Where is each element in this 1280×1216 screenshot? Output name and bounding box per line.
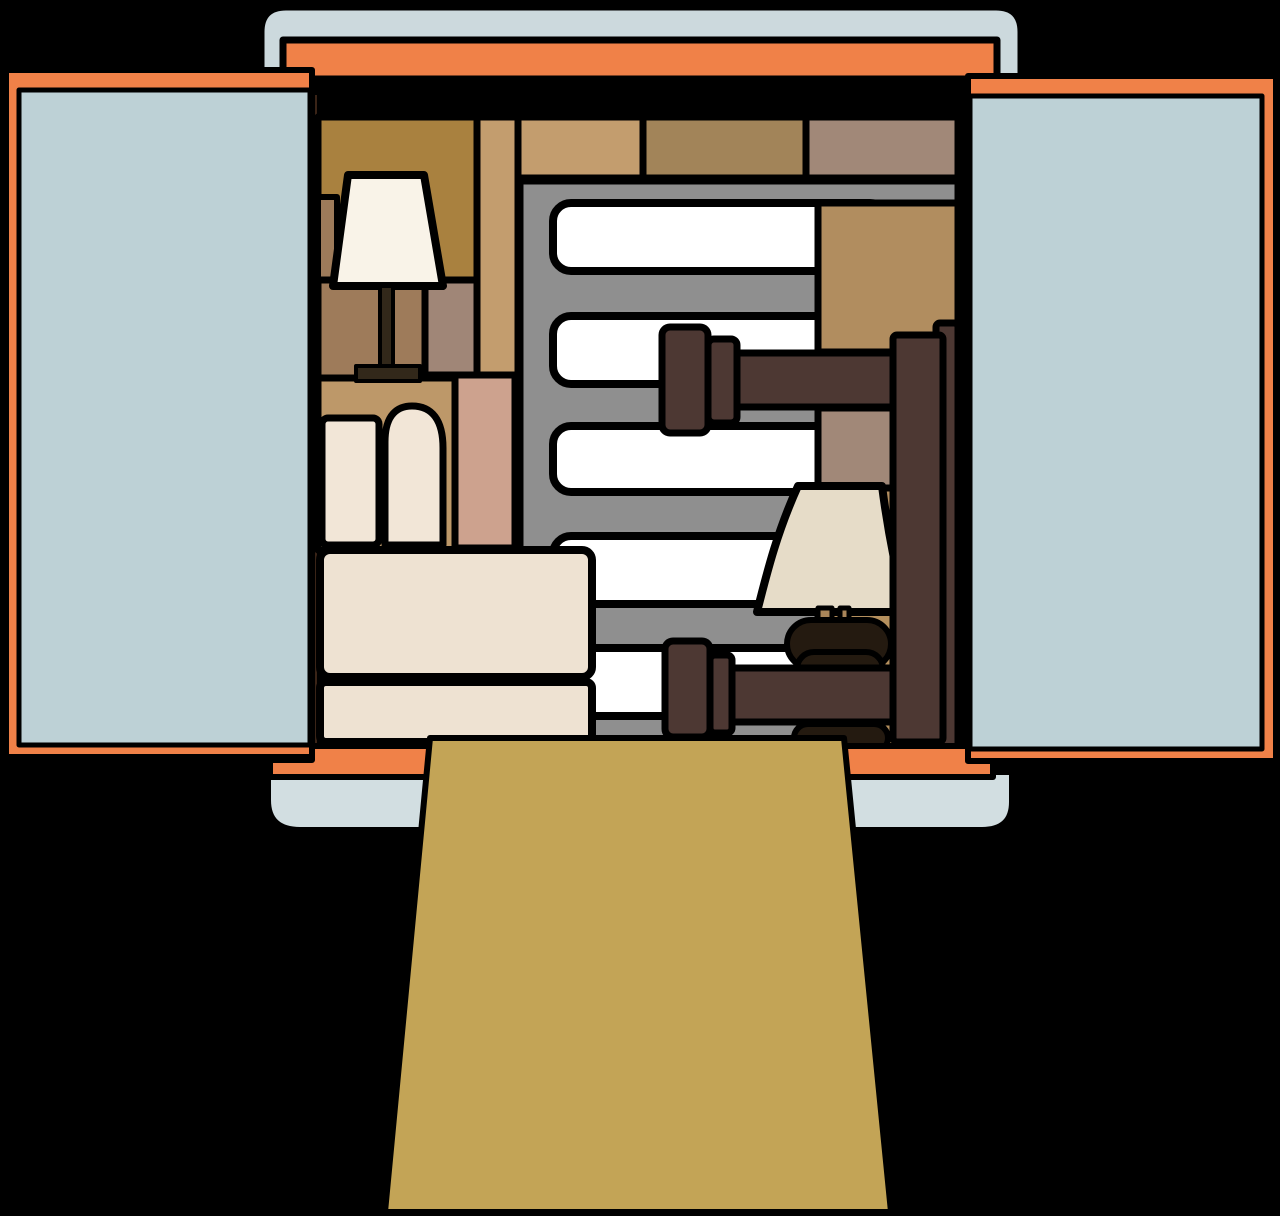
floor-lamp-base xyxy=(356,366,420,381)
box-mauve-top xyxy=(806,117,958,178)
bed-upper-bracket-a xyxy=(662,327,708,433)
loading-ramp xyxy=(385,738,891,1212)
bed-lower-rail xyxy=(730,668,897,722)
sofa-cushion-arm xyxy=(385,406,443,545)
sofa-cushion-left xyxy=(322,418,379,545)
moving-truck-illustration xyxy=(0,0,1280,1216)
box-tan-top xyxy=(518,117,643,178)
box-brown-top xyxy=(643,117,806,178)
box-mauve-left xyxy=(425,280,477,375)
bed-upper-rail xyxy=(735,353,897,407)
left-door xyxy=(6,70,312,757)
header-bar xyxy=(283,40,997,79)
box-tan-column xyxy=(477,117,518,380)
floor-lamp-stem xyxy=(380,286,393,368)
floor-lamp-shade xyxy=(333,175,443,286)
left-door-panel xyxy=(19,90,310,745)
box-mauve-right xyxy=(818,408,893,488)
sofa-body xyxy=(320,550,592,677)
right-door-panel xyxy=(970,96,1262,749)
box-pink xyxy=(455,375,515,548)
sofa-base xyxy=(320,682,592,742)
bed-upper-bracket-b xyxy=(708,339,737,423)
bed-lower-bracket-a xyxy=(665,641,710,737)
right-door xyxy=(968,76,1276,761)
box-medium-brown xyxy=(318,280,425,378)
bed-post-inner xyxy=(893,335,943,742)
